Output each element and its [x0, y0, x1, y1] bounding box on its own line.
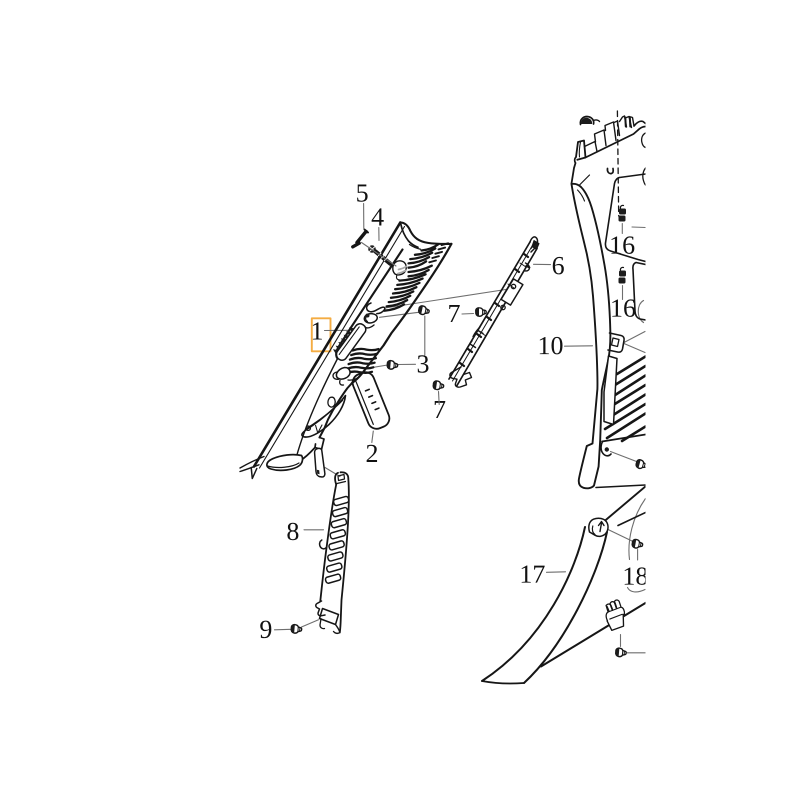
svg-text:10: 10	[538, 331, 564, 360]
svg-text:6: 6	[552, 251, 565, 280]
svg-text:17: 17	[519, 560, 545, 589]
svg-text:8: 8	[286, 517, 299, 546]
svg-text:3: 3	[417, 350, 430, 379]
svg-text:18: 18	[622, 562, 648, 591]
svg-text:5: 5	[356, 178, 369, 207]
svg-text:7: 7	[448, 299, 461, 328]
svg-text:9: 9	[259, 615, 272, 644]
svg-text:4: 4	[371, 202, 384, 231]
svg-text:2: 2	[365, 439, 378, 468]
svg-text:7: 7	[433, 395, 446, 424]
